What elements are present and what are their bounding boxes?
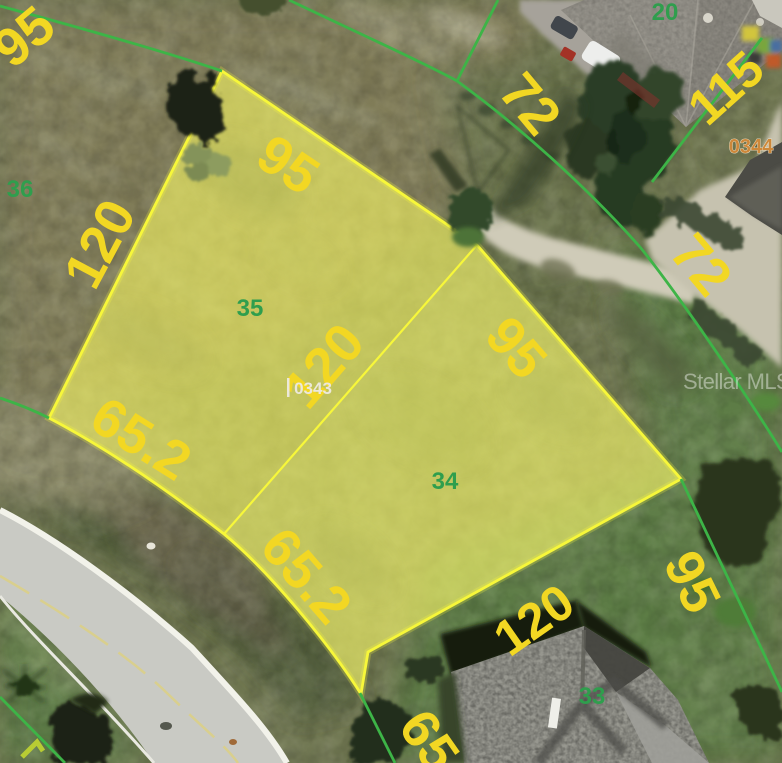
svg-text:33: 33	[579, 683, 606, 710]
svg-text:35: 35	[237, 295, 264, 322]
svg-text:0344: 0344	[729, 136, 774, 158]
svg-text:20: 20	[652, 0, 679, 26]
svg-text:Stellar MLS: Stellar MLS	[683, 369, 782, 394]
svg-text:34: 34	[432, 468, 459, 495]
svg-text:36: 36	[7, 176, 34, 203]
svg-text:0343: 0343	[294, 379, 332, 398]
